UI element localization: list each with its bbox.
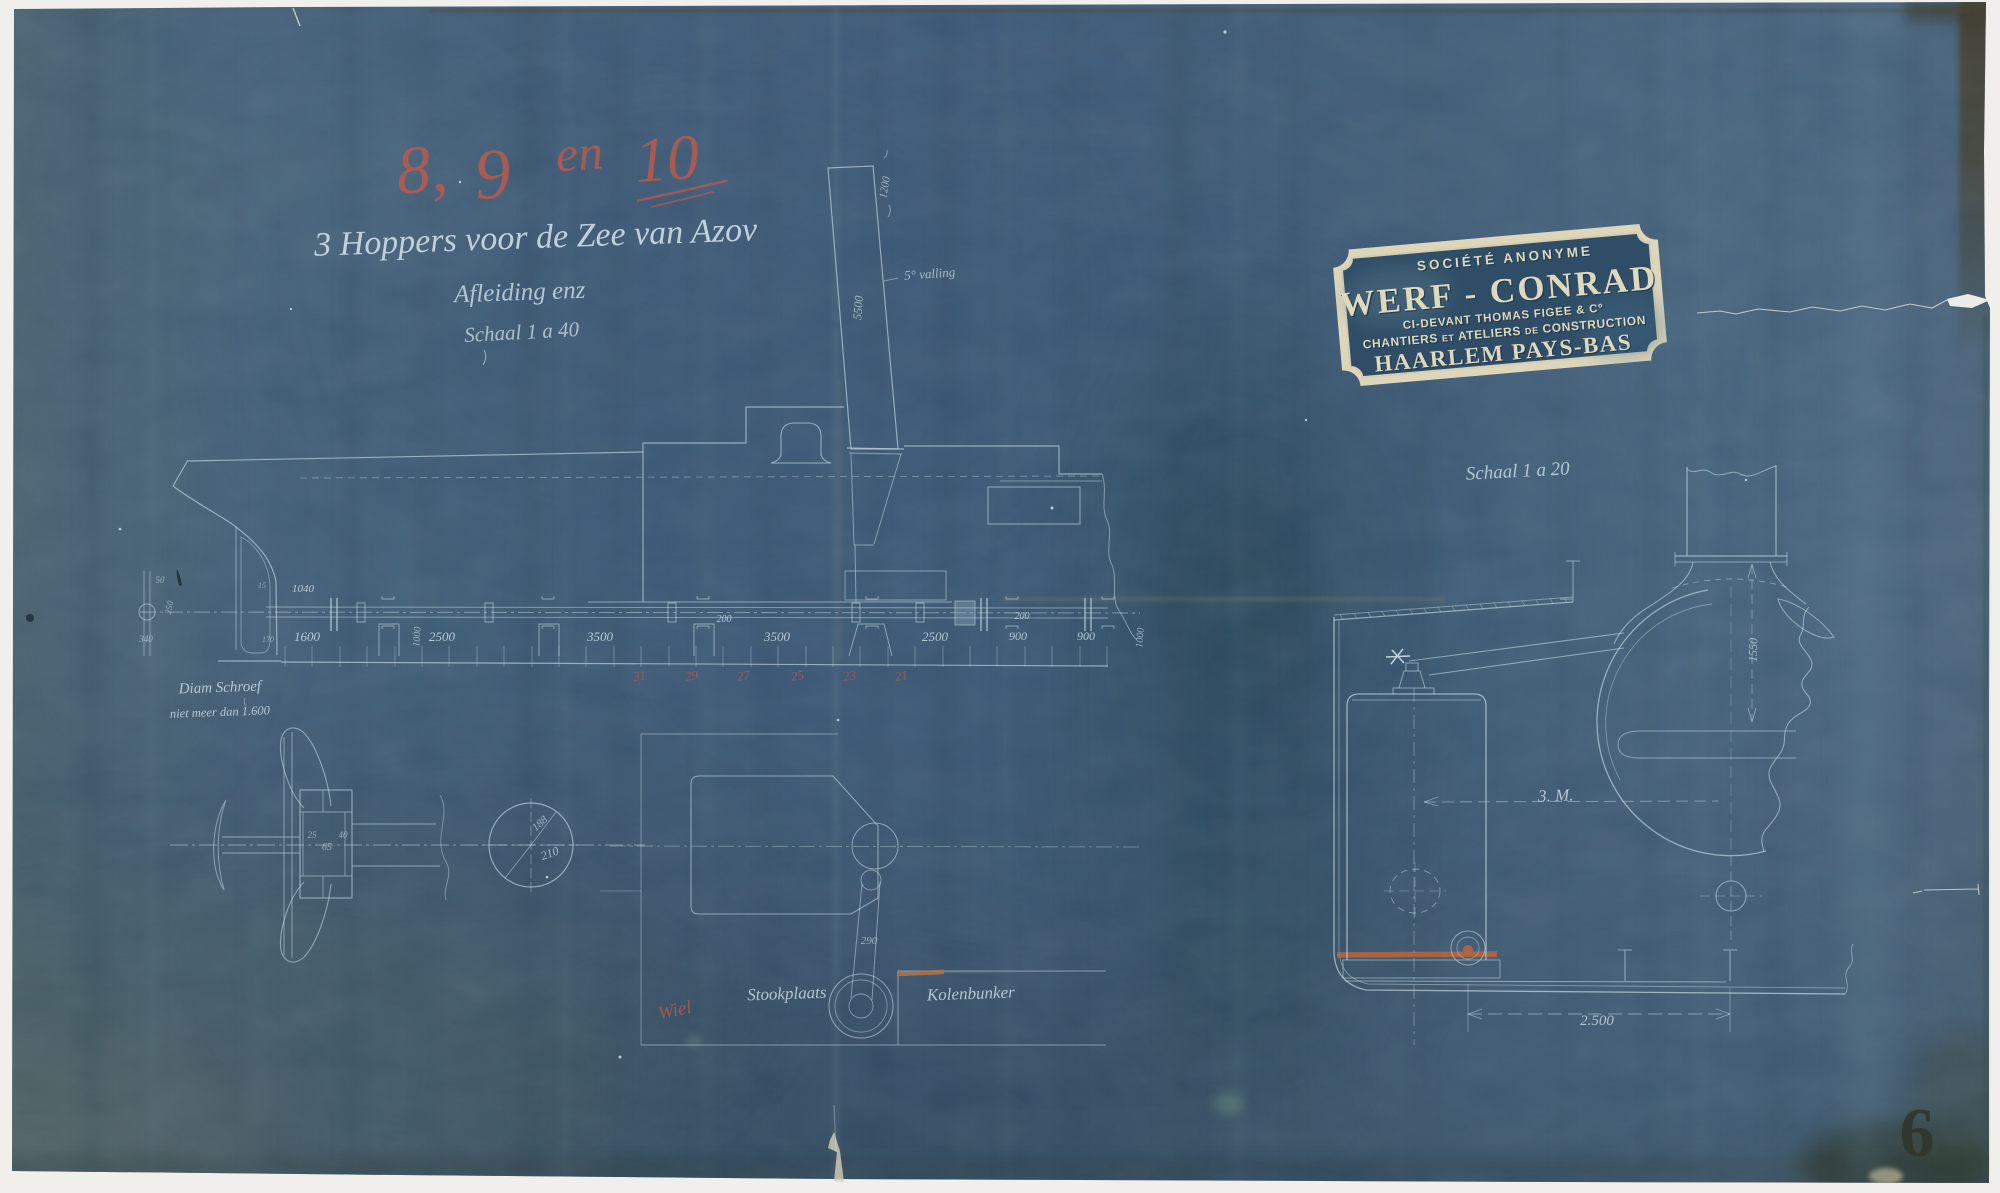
svg-text:25: 25	[308, 830, 318, 840]
svg-text:65: 65	[322, 842, 332, 853]
svg-text:1000: 1000	[1134, 627, 1147, 648]
svg-text:170: 170	[262, 635, 274, 644]
svg-text:50: 50	[156, 575, 166, 585]
svg-text:25: 25	[790, 667, 805, 684]
svg-text:900: 900	[1009, 629, 1027, 643]
svg-text:1600: 1600	[294, 629, 321, 644]
svg-text:Diam Schroef: Diam Schroef	[177, 679, 263, 698]
svg-text:31: 31	[631, 667, 647, 684]
svg-text:9: 9	[472, 133, 513, 215]
svg-text:3500: 3500	[586, 629, 614, 644]
svg-text:340: 340	[138, 634, 153, 644]
svg-text:200: 200	[1015, 611, 1030, 622]
svg-text:6: 6	[1900, 1095, 1935, 1172]
svg-text:21: 21	[894, 667, 909, 684]
svg-text:1000: 1000	[411, 626, 424, 647]
svg-text:290: 290	[861, 935, 878, 947]
svg-text:3. M.: 3. M.	[1537, 785, 1574, 805]
svg-text:2.500: 2.500	[1580, 1013, 1614, 1029]
svg-text:10: 10	[632, 121, 701, 196]
svg-text:8,: 8,	[394, 129, 450, 208]
svg-text:40: 40	[339, 830, 349, 840]
svg-text:3500: 3500	[763, 629, 791, 644]
svg-text:29: 29	[684, 667, 699, 684]
svg-text:Stookplaats: Stookplaats	[747, 983, 827, 1005]
svg-text:2500: 2500	[429, 629, 456, 644]
svg-text:Afleiding enz: Afleiding enz	[452, 277, 586, 309]
svg-text:Kolenbunker: Kolenbunker	[926, 982, 1016, 1004]
svg-text:200: 200	[717, 614, 732, 625]
svg-text:1550: 1550	[1746, 638, 1761, 662]
svg-text:900: 900	[1077, 629, 1095, 643]
svg-text:en: en	[554, 123, 605, 182]
svg-text:1040: 1040	[292, 583, 315, 595]
svg-text:2500: 2500	[922, 629, 949, 644]
svg-text:23: 23	[842, 667, 857, 684]
svg-text:27: 27	[736, 667, 751, 684]
svg-text:5500: 5500	[850, 295, 866, 320]
svg-text:15: 15	[258, 581, 266, 590]
